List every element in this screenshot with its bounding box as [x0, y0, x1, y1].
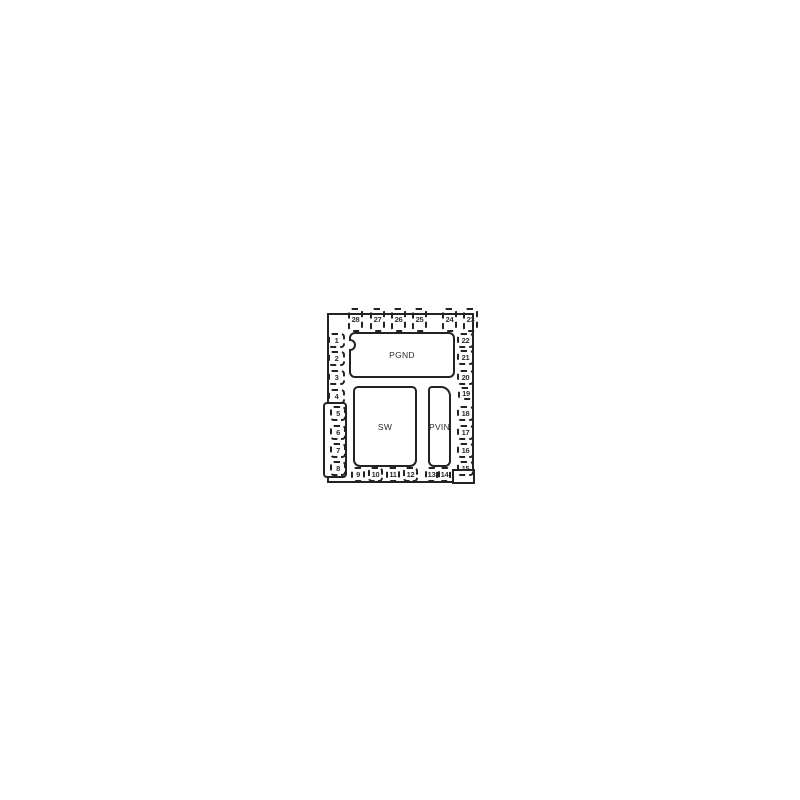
- pin-pad-10: 10: [368, 467, 383, 482]
- pin-pad-3: 3: [328, 370, 345, 385]
- pin-pad-26: 26: [391, 308, 406, 332]
- pin-pad-20: 20: [457, 370, 474, 385]
- pin-number: 9: [356, 471, 360, 479]
- pin-number: 10: [372, 471, 380, 479]
- pin-pad-19: 19: [458, 387, 474, 400]
- pin-number: 6: [336, 429, 340, 437]
- pin-number: 15: [462, 465, 470, 473]
- pin-layer: 1234567891011121314151617181920212223242…: [0, 0, 800, 800]
- pin-pad-14: 14: [438, 467, 451, 482]
- pin-pad-13: 13: [425, 467, 438, 482]
- pin-pad-23: 23: [463, 308, 478, 332]
- pin-number: 28: [352, 316, 360, 324]
- pin-number: 26: [395, 316, 403, 324]
- pin-number: 17: [462, 429, 470, 437]
- pin-pad-1: 1: [328, 333, 345, 348]
- pin-pad-25: 25: [412, 308, 427, 332]
- pin-number: 24: [446, 316, 454, 324]
- pin-number: 2: [335, 355, 339, 363]
- pin-number: 7: [336, 447, 340, 455]
- pin-pad-9: 9: [351, 467, 365, 482]
- pin-number: 5: [336, 410, 340, 418]
- pin-number: 4: [335, 393, 339, 401]
- pin-number: 1: [335, 337, 339, 345]
- pin-pad-24: 24: [442, 308, 457, 332]
- pin-number: 8: [336, 465, 340, 473]
- pin-number: 20: [462, 374, 470, 382]
- pin-pad-12: 12: [403, 467, 418, 482]
- pin-number: 22: [462, 337, 470, 345]
- pin-pad-11: 11: [386, 467, 400, 482]
- pin-pad-7: 7: [330, 443, 346, 458]
- pin-pad-6: 6: [330, 425, 346, 440]
- pin-number: 12: [407, 471, 415, 479]
- pin-number: 23: [467, 316, 475, 324]
- package-land-pattern-diagram: PGND SW PVIN 123456789101112131415161718…: [0, 0, 800, 800]
- pin-number: 25: [416, 316, 424, 324]
- pin-pad-15: 15: [457, 461, 474, 476]
- pin-number: 11: [389, 471, 396, 479]
- pin-number: 13: [428, 471, 436, 479]
- pin-number: 21: [462, 354, 470, 362]
- pin-pad-27: 27: [370, 308, 385, 332]
- pin-pad-2: 2: [328, 351, 345, 366]
- pin-number: 27: [374, 316, 382, 324]
- pin-number: 3: [335, 374, 339, 382]
- pin-pad-28: 28: [348, 308, 363, 332]
- pin-number: 16: [462, 447, 470, 455]
- pin-pad-4: 4: [328, 389, 345, 404]
- pin-number: 14: [441, 471, 449, 479]
- pin-pad-16: 16: [457, 443, 474, 458]
- pin-pad-5: 5: [330, 406, 346, 421]
- pin-number: 18: [462, 410, 470, 418]
- pin-pad-18: 18: [457, 406, 474, 421]
- pin-pad-17: 17: [457, 425, 474, 440]
- pin-pad-21: 21: [457, 350, 474, 365]
- pin-pad-22: 22: [457, 333, 474, 348]
- pin-number: 19: [462, 390, 470, 398]
- pin-pad-8: 8: [330, 461, 346, 476]
